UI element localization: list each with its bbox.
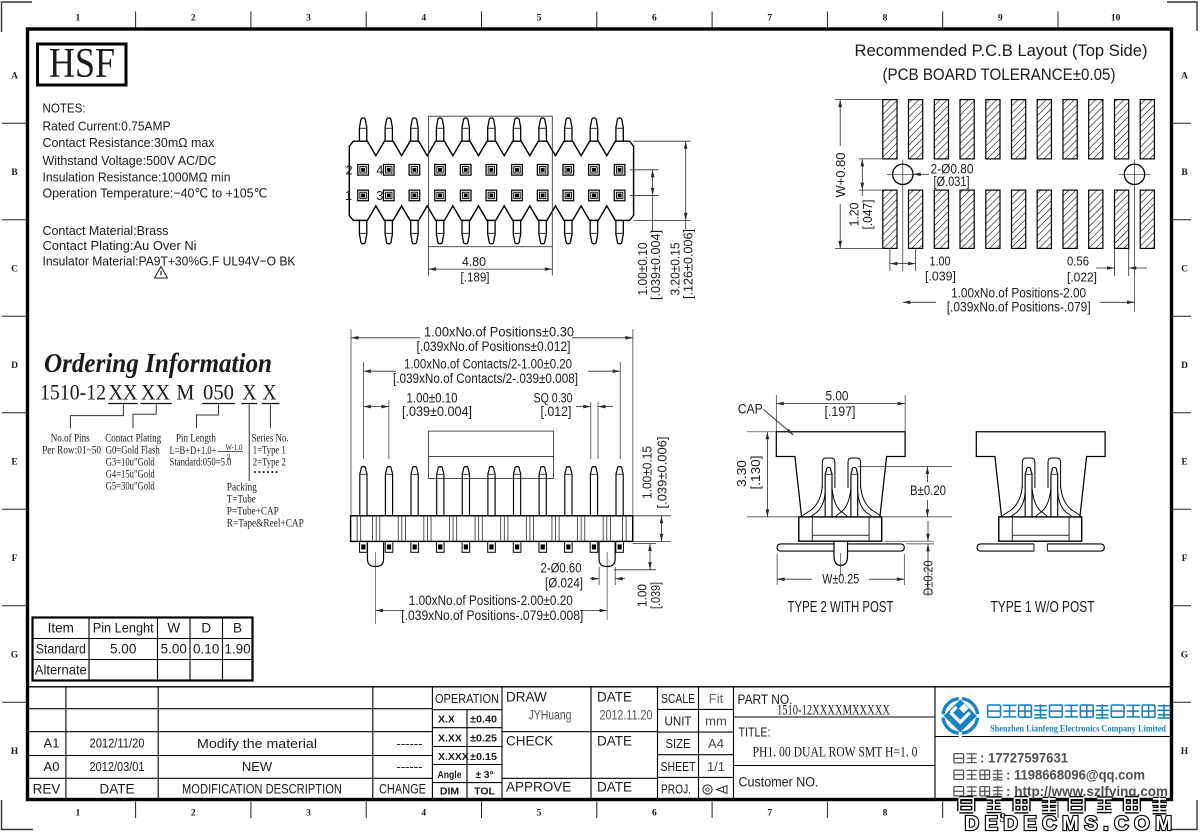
svg-text:X.XXX: X.XXX	[438, 751, 469, 763]
svg-text:[.039]: [.039]	[925, 269, 956, 284]
svg-text:Item: Item	[48, 621, 74, 636]
svg-text:Insulation Resistance:1000MΩ m: Insulation Resistance:1000MΩ min	[43, 170, 231, 185]
svg-text:SHEET: SHEET	[661, 759, 696, 774]
svg-text:A1: A1	[44, 736, 60, 751]
svg-text:E: E	[11, 458, 17, 468]
svg-text:6: 6	[652, 809, 657, 819]
svg-text:2012.11.20: 2012.11.20	[600, 708, 653, 723]
svg-text:OPERATION: OPERATION	[435, 691, 499, 706]
svg-text:5: 5	[537, 809, 542, 819]
svg-text:8: 8	[883, 14, 888, 24]
svg-text:3: 3	[376, 188, 383, 203]
svg-text:± 3°: ± 3°	[476, 769, 494, 781]
svg-text:1.00xNo.of Positions-2.00±0.20: 1.00xNo.of Positions-2.00±0.20	[409, 593, 573, 608]
svg-text:X.X: X.X	[438, 714, 455, 726]
svg-text:3: 3	[306, 809, 311, 819]
svg-text:: 17727597631: : 17727597631	[980, 750, 1068, 766]
svg-text:A0: A0	[44, 759, 60, 774]
svg-text:4: 4	[421, 14, 426, 24]
svg-text:E: E	[1181, 458, 1187, 468]
svg-text:2012/03/01: 2012/03/01	[90, 759, 145, 774]
svg-text:TOL: TOL	[474, 786, 495, 798]
svg-text:: 1198668096@qq.com: : 1198668096@qq.com	[1006, 767, 1145, 782]
svg-text:1.00±0.10: 1.00±0.10	[636, 242, 650, 295]
svg-text:(PCB BOARD TOLERANCE±0.05): (PCB BOARD TOLERANCE±0.05)	[883, 65, 1116, 84]
svg-text:H: H	[11, 747, 19, 757]
svg-text:NEW: NEW	[242, 759, 273, 774]
svg-text:SIZE: SIZE	[666, 736, 691, 751]
svg-text:DATE: DATE	[597, 690, 632, 705]
svg-text:Contact Plating:Au Over Ni: Contact Plating:Au Over Ni	[43, 238, 197, 253]
svg-text:TITLE:: TITLE:	[739, 725, 771, 740]
svg-text:3: 3	[306, 14, 311, 24]
svg-text:Standard:050=5.0: Standard:050=5.0	[170, 455, 232, 469]
svg-text:X: X	[263, 380, 277, 405]
svg-text:DATE: DATE	[597, 780, 632, 795]
svg-text:A4: A4	[708, 736, 724, 751]
svg-text:Customer NO.: Customer NO.	[739, 775, 819, 790]
svg-text:[.130]: [.130]	[748, 456, 763, 490]
svg-text:1/1: 1/1	[707, 759, 725, 774]
svg-text:DRAW: DRAW	[506, 690, 547, 705]
svg-text:[.022]: [.022]	[1067, 270, 1097, 285]
svg-text:DEDECMS.COM: DEDECMS.COM	[965, 813, 1178, 832]
svg-text:2: 2	[345, 163, 352, 178]
svg-text:4: 4	[376, 163, 383, 178]
svg-text:2012/11/20: 2012/11/20	[90, 736, 145, 751]
svg-text:B: B	[233, 621, 242, 636]
svg-text:7: 7	[767, 809, 772, 819]
svg-text:DIM: DIM	[440, 786, 460, 798]
svg-text:[.039xNo.of Positions-.079±0.0: [.039xNo.of Positions-.079±0.008]	[401, 608, 583, 623]
svg-text:1.00xNo.of Positions±0.30: 1.00xNo.of Positions±0.30	[424, 325, 574, 340]
svg-text:APPROVE: APPROVE	[506, 780, 571, 795]
svg-text:Alternate: Alternate	[35, 663, 87, 678]
svg-text:Standard: Standard	[36, 642, 86, 657]
svg-text:------: ------	[397, 759, 423, 774]
svg-text:1: 1	[76, 14, 81, 24]
svg-text:[.039]: [.039]	[649, 582, 663, 609]
svg-text:CHECK: CHECK	[506, 734, 553, 749]
svg-text:DATE: DATE	[597, 734, 632, 749]
svg-text:W+0.80: W+0.80	[833, 153, 848, 198]
svg-text:2-Ø0.60: 2-Ø0.60	[541, 561, 582, 576]
svg-text:X: X	[243, 380, 257, 405]
svg-text:CHANGE: CHANGE	[379, 782, 426, 797]
svg-text:4.80: 4.80	[462, 254, 486, 269]
svg-text:Pin Lenght: Pin Lenght	[93, 621, 154, 636]
svg-text:1.00xNo.of Contacts/2-1.00±0.2: 1.00xNo.of Contacts/2-1.00±0.20	[404, 356, 572, 371]
svg-text:R=Tape&Reel+CAP: R=Tape&Reel+CAP	[227, 516, 304, 530]
svg-text:[.039±0.004]: [.039±0.004]	[402, 404, 472, 419]
svg-text:G: G	[11, 651, 19, 661]
svg-text:······: ······	[253, 464, 279, 479]
svg-text:[.039xNo.of Positions-.079]: [.039xNo.of Positions-.079]	[947, 300, 1091, 315]
svg-text:F: F	[1182, 554, 1188, 564]
svg-text:TYPE 2 WITH POST: TYPE 2 WITH POST	[788, 599, 894, 616]
svg-text:D: D	[201, 621, 211, 636]
svg-text:SCALE: SCALE	[661, 691, 695, 706]
svg-text:Contact Material:Brass: Contact Material:Brass	[43, 223, 169, 238]
svg-text:3.30: 3.30	[734, 460, 749, 487]
svg-text:Modify the material: Modify the material	[197, 736, 317, 751]
svg-text:M: M	[176, 380, 194, 405]
svg-text:050: 050	[203, 380, 234, 405]
svg-text:±0.15: ±0.15	[470, 751, 497, 763]
svg-text:[.047]: [.047]	[860, 200, 875, 230]
svg-text:Recommended P.C.B Layout (Top: Recommended P.C.B Layout (Top Side)	[855, 41, 1148, 60]
svg-text:JYHuang: JYHuang	[529, 708, 572, 723]
svg-text:CAP: CAP	[738, 402, 763, 417]
svg-text:[.039xNo.of Positions±0.012]: [.039xNo.of Positions±0.012]	[417, 339, 571, 354]
svg-text:W-1.0: W-1.0	[226, 443, 243, 452]
svg-text:1510-12XXXXMXXXXX: 1510-12XXXXMXXXXX	[777, 703, 890, 719]
svg-text:2: 2	[191, 809, 196, 819]
svg-text:Insulator Material:PA9T+30%G.F: Insulator Material:PA9T+30%G.F UL94V−O B…	[43, 254, 296, 269]
svg-text:MODIFICATION DESCRIPTION: MODIFICATION DESCRIPTION	[182, 782, 342, 797]
svg-text:[.189]: [.189]	[461, 270, 490, 285]
svg-text:1.00±0.15: 1.00±0.15	[641, 446, 655, 499]
svg-text:Operation Temperature:−40℃ to: Operation Temperature:−40℃ to +105℃	[43, 186, 268, 201]
svg-text:9: 9	[998, 14, 1003, 24]
svg-text:XX: XX	[109, 380, 138, 405]
svg-text:F: F	[12, 554, 18, 564]
svg-text:Withstand Voltage:500V AC/DC: Withstand Voltage:500V AC/DC	[43, 153, 217, 168]
svg-text:mm: mm	[705, 714, 727, 729]
svg-text:Ordering Information: Ordering Information	[44, 348, 272, 378]
svg-text:[.039±0.004]: [.039±0.004]	[649, 230, 663, 300]
svg-text:D: D	[11, 361, 18, 371]
svg-text:G5=30u"Gold: G5=30u"Gold	[106, 479, 155, 493]
svg-text:[.039xNo.of Contacts/2-.039±0.: [.039xNo.of Contacts/2-.039±0.008]	[393, 371, 578, 386]
svg-text:7: 7	[767, 14, 772, 24]
svg-text:Angle: Angle	[438, 769, 462, 781]
svg-text:1510-12: 1510-12	[40, 380, 106, 405]
svg-text:[.012]: [.012]	[541, 404, 572, 419]
svg-text:Rated Current:0.75AMP: Rated Current:0.75AMP	[43, 119, 171, 134]
svg-text:2: 2	[191, 14, 196, 24]
svg-text:NOTES:: NOTES:	[43, 101, 86, 116]
svg-text:5.00: 5.00	[161, 642, 187, 657]
svg-text:1: 1	[76, 809, 81, 819]
svg-text:UNIT: UNIT	[665, 714, 692, 729]
svg-text:B: B	[1181, 168, 1188, 178]
svg-text:HSF: HSF	[49, 41, 115, 87]
svg-text:5.00: 5.00	[826, 389, 849, 404]
svg-text:PH1. 00 DUAL ROW SMT H=1. 0: PH1. 00 DUAL ROW SMT H=1. 0	[753, 745, 918, 761]
svg-text:C: C	[11, 265, 18, 275]
svg-text:C: C	[1181, 265, 1188, 275]
svg-text:5: 5	[537, 14, 542, 24]
svg-text:6: 6	[652, 14, 657, 24]
svg-text:[Ø.031]: [Ø.031]	[934, 174, 970, 189]
svg-text:[Ø.024]: [Ø.024]	[545, 576, 583, 591]
svg-text:H: H	[1181, 747, 1189, 757]
svg-text:1.00: 1.00	[930, 254, 951, 269]
svg-text:Shenzhen Lianfeng Electronics: Shenzhen Lianfeng Electronics Company Li…	[990, 725, 1167, 735]
svg-text:W±0.25: W±0.25	[822, 572, 859, 587]
svg-text:D: D	[1181, 361, 1188, 371]
svg-text:3.20±0.15: 3.20±0.15	[669, 242, 683, 295]
svg-text:PROJ.: PROJ.	[661, 782, 691, 797]
svg-text:: http://www.szlfying.com: : http://www.szlfying.com	[1006, 784, 1168, 799]
svg-text:1.90: 1.90	[224, 642, 250, 657]
svg-text:B±0.20: B±0.20	[910, 483, 946, 498]
svg-text:X.XX: X.XX	[438, 733, 462, 745]
svg-text:1.00: 1.00	[636, 584, 650, 607]
svg-text:±0.25: ±0.25	[470, 733, 497, 745]
svg-text:G: G	[1181, 651, 1189, 661]
svg-text:0.10: 0.10	[193, 642, 219, 657]
svg-text:A: A	[11, 72, 18, 82]
svg-text:0.56: 0.56	[1067, 254, 1089, 269]
svg-text:[.197]: [.197]	[825, 404, 856, 419]
svg-text:B: B	[11, 168, 18, 178]
svg-text:Fit: Fit	[709, 691, 724, 706]
svg-text:1: 1	[345, 188, 352, 203]
svg-text:Per Row:01~50: Per Row:01~50	[42, 443, 101, 457]
svg-text:W: W	[167, 621, 180, 636]
svg-text:Contact Resistance:30mΩ max: Contact Resistance:30mΩ max	[43, 135, 215, 150]
svg-text:4: 4	[421, 809, 426, 819]
svg-text:DATE: DATE	[99, 782, 134, 797]
svg-text:5.00: 5.00	[110, 642, 136, 657]
svg-text:------: ------	[397, 736, 423, 751]
svg-text:±0.40: ±0.40	[470, 714, 497, 726]
svg-text:[.126±0.006]: [.126±0.006]	[682, 229, 696, 299]
svg-text:[.039±0.006]: [.039±0.006]	[656, 437, 670, 509]
svg-text:TYPE 1 W/O POST: TYPE 1 W/O POST	[991, 599, 1095, 616]
svg-text:8: 8	[883, 809, 888, 819]
svg-text:REV: REV	[33, 782, 61, 797]
svg-text:D±0.20: D±0.20	[921, 561, 936, 596]
svg-text:XX: XX	[141, 380, 170, 405]
svg-text:10: 10	[1111, 14, 1121, 24]
svg-text:1.00xNo.of Positions-2.00: 1.00xNo.of Positions-2.00	[951, 285, 1086, 300]
svg-text:A: A	[1181, 72, 1188, 82]
